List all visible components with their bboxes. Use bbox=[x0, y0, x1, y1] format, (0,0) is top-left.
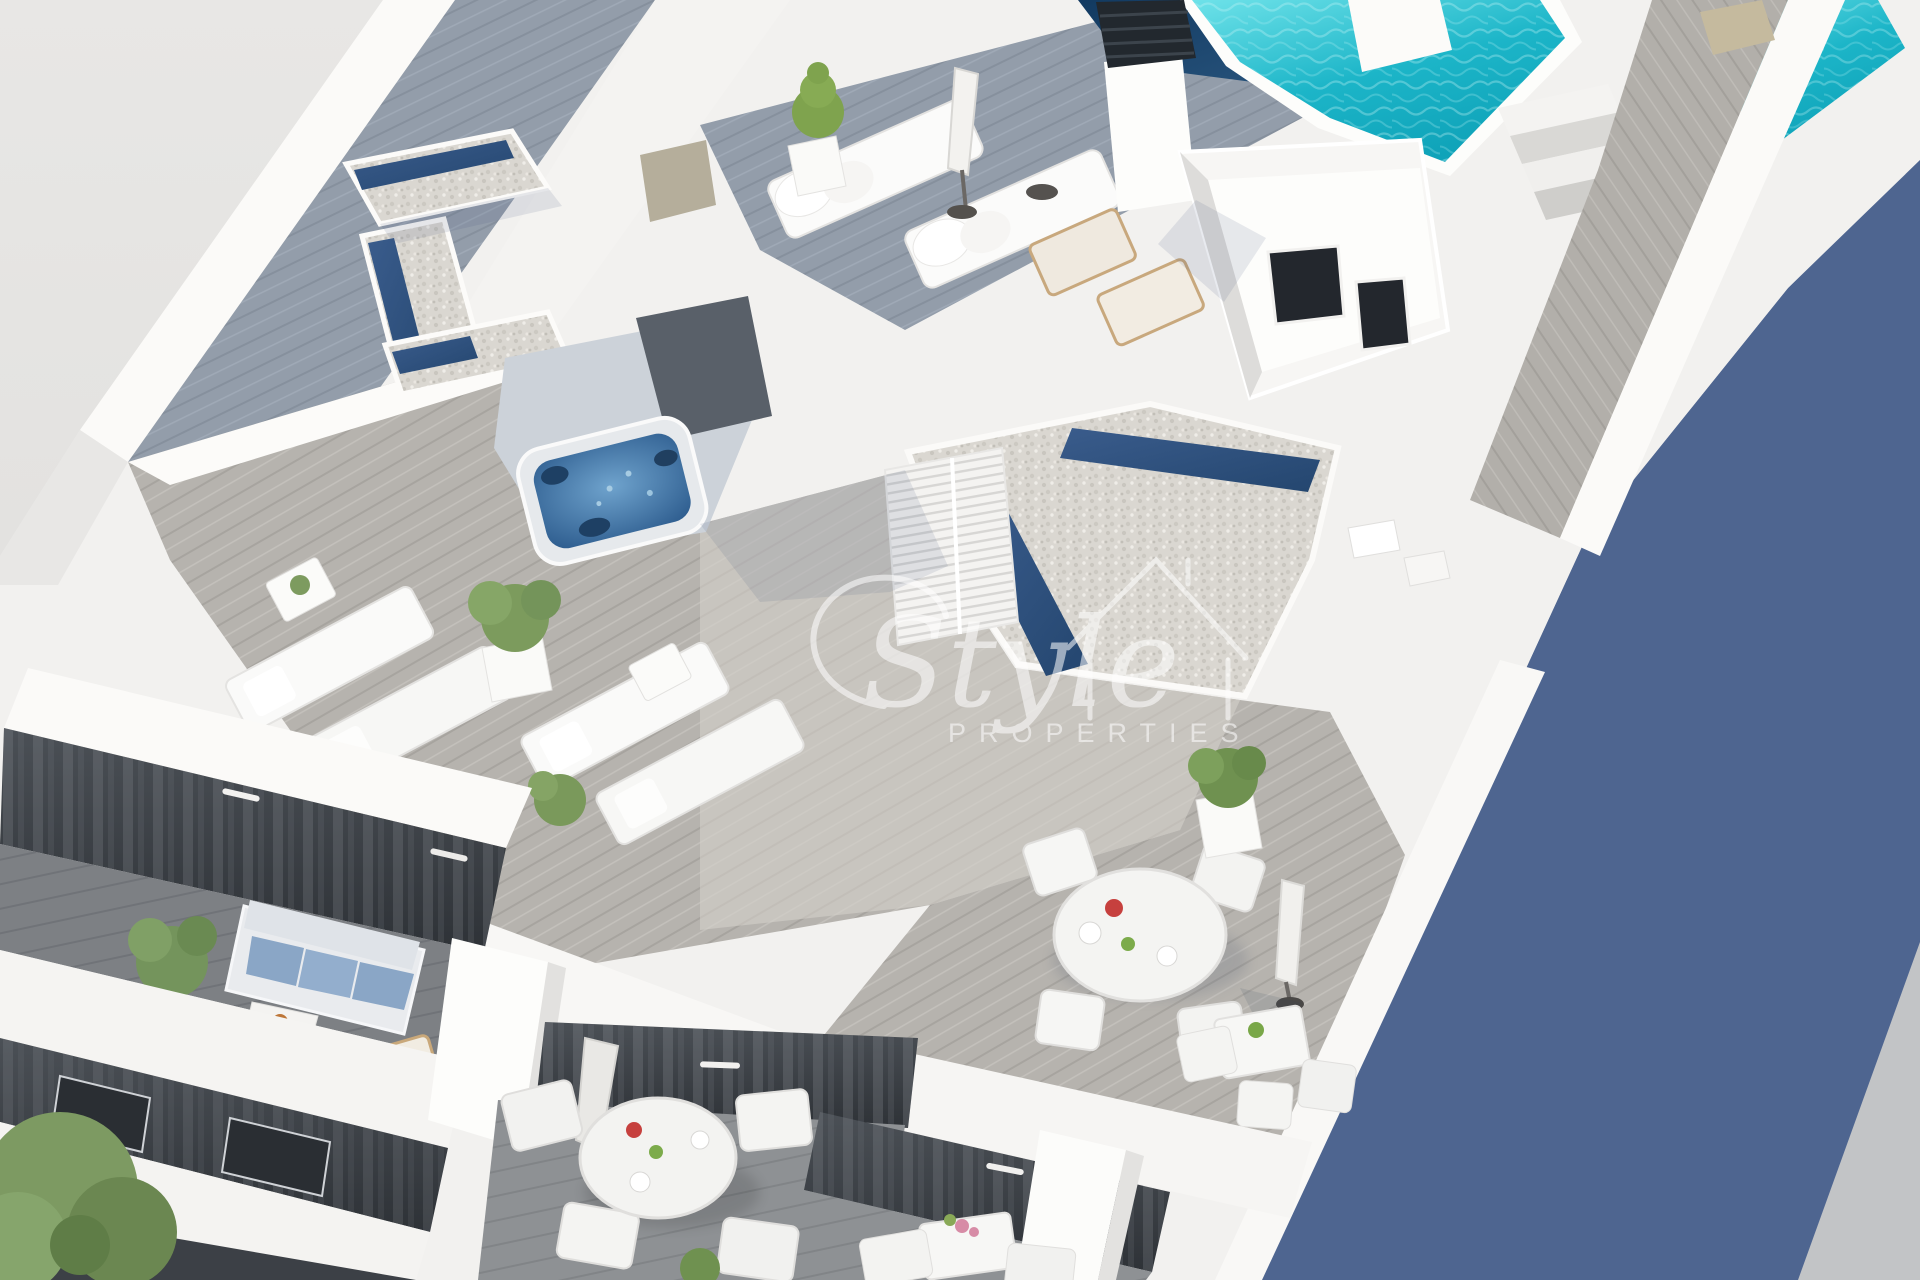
watermark-sub: PROPERTIES bbox=[948, 718, 1252, 748]
white-plate-1 bbox=[1079, 922, 1101, 944]
table-plant-1 bbox=[290, 575, 310, 595]
bistro-chair-1 bbox=[1176, 1025, 1239, 1083]
white-plate-2 bbox=[1157, 946, 1177, 966]
watermark-script: Style bbox=[862, 592, 1180, 736]
flower-bistro-table bbox=[919, 1212, 1018, 1280]
bistro-chair-3 bbox=[1236, 1080, 1293, 1130]
parasol-base-2 bbox=[1026, 184, 1058, 200]
bistro-green-item bbox=[1248, 1022, 1264, 1038]
flower-pink-1 bbox=[955, 1219, 969, 1233]
red-plate-2 bbox=[626, 1122, 642, 1138]
bistro-chair-5 bbox=[1004, 1243, 1077, 1280]
white-plate-3 bbox=[691, 1131, 709, 1149]
potted-bush-2b bbox=[528, 771, 558, 801]
bistro-chair-2 bbox=[1297, 1058, 1357, 1113]
render-svg: Style PROPERTIES bbox=[0, 0, 1920, 1280]
cypress-pot bbox=[788, 136, 846, 196]
chair-t3-d bbox=[735, 1088, 812, 1151]
chair-t1-c bbox=[1035, 989, 1106, 1051]
green-plate-2 bbox=[649, 1145, 663, 1159]
flower-pink-2 bbox=[969, 1227, 979, 1237]
lightwell-window-1 bbox=[1268, 246, 1344, 324]
render-stage: Style PROPERTIES bbox=[0, 0, 1920, 1280]
white-plate-4 bbox=[630, 1172, 650, 1192]
green-plate bbox=[1121, 937, 1135, 951]
red-plate bbox=[1105, 899, 1123, 917]
flower-green bbox=[944, 1214, 956, 1226]
chair-t3-c bbox=[716, 1217, 799, 1280]
lightwell-window-2 bbox=[1356, 278, 1410, 350]
